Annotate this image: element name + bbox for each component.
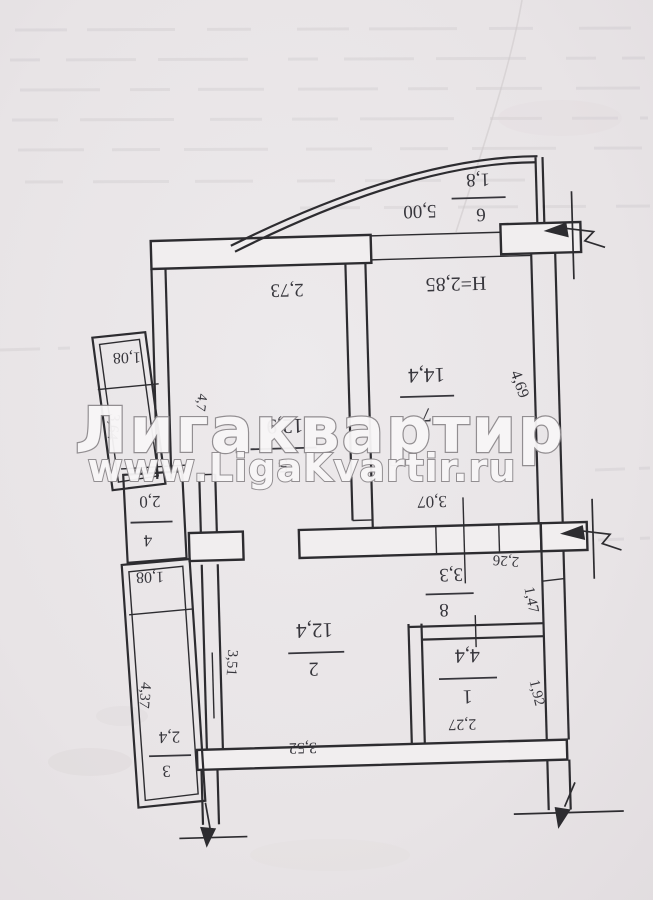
dim-3-07: 3,07 (416, 492, 447, 512)
room4-number: 4 (143, 531, 153, 550)
dim-3-52: 3,52 (289, 739, 317, 757)
room4-area: 2,0 (139, 492, 161, 512)
watermark: Лигаквартир www.LigaKvartir.ru (75, 394, 565, 490)
dim-2-73: 2,73 (270, 279, 304, 301)
room3-number: 3 (162, 762, 171, 781)
room3-area: 2,4 (158, 727, 180, 747)
ceiling-height: H=2,85 (425, 272, 486, 296)
wall-mid-left (189, 532, 244, 561)
room7-area: 14,4 (407, 363, 445, 388)
room2-number: 2 (308, 658, 319, 680)
room1-number: 1 (462, 685, 473, 707)
room1-area: 4,4 (455, 644, 481, 667)
dim-2-27: 2,27 (448, 715, 476, 733)
wall-right-block (500, 222, 581, 254)
watermark-url: www.LigaKvartir.ru (88, 446, 517, 490)
dim-5-00: 5,00 (403, 200, 437, 222)
room8-number: 8 (439, 599, 449, 620)
dim-4-37: 4,37 (135, 681, 153, 709)
room6-number: 6 (476, 204, 486, 225)
scanned-floorplan-photo: 2,73 12,9 5 4,7 H=2,85 14,4 7 4,69 1,8 6… (0, 0, 653, 900)
room8-area: 3,3 (439, 563, 463, 585)
dim-1-08-b: 1,08 (136, 568, 164, 586)
room2-area: 12,4 (295, 618, 333, 643)
dim-3-51: 3,51 (223, 649, 241, 676)
dim-2-26: 2,26 (492, 551, 520, 569)
room6-area: 1,8 (466, 169, 490, 191)
floorplan-svg: 2,73 12,9 5 4,7 H=2,85 14,4 7 4,69 1,8 6… (0, 0, 653, 900)
dim-1-08-a: 1,08 (113, 348, 141, 366)
